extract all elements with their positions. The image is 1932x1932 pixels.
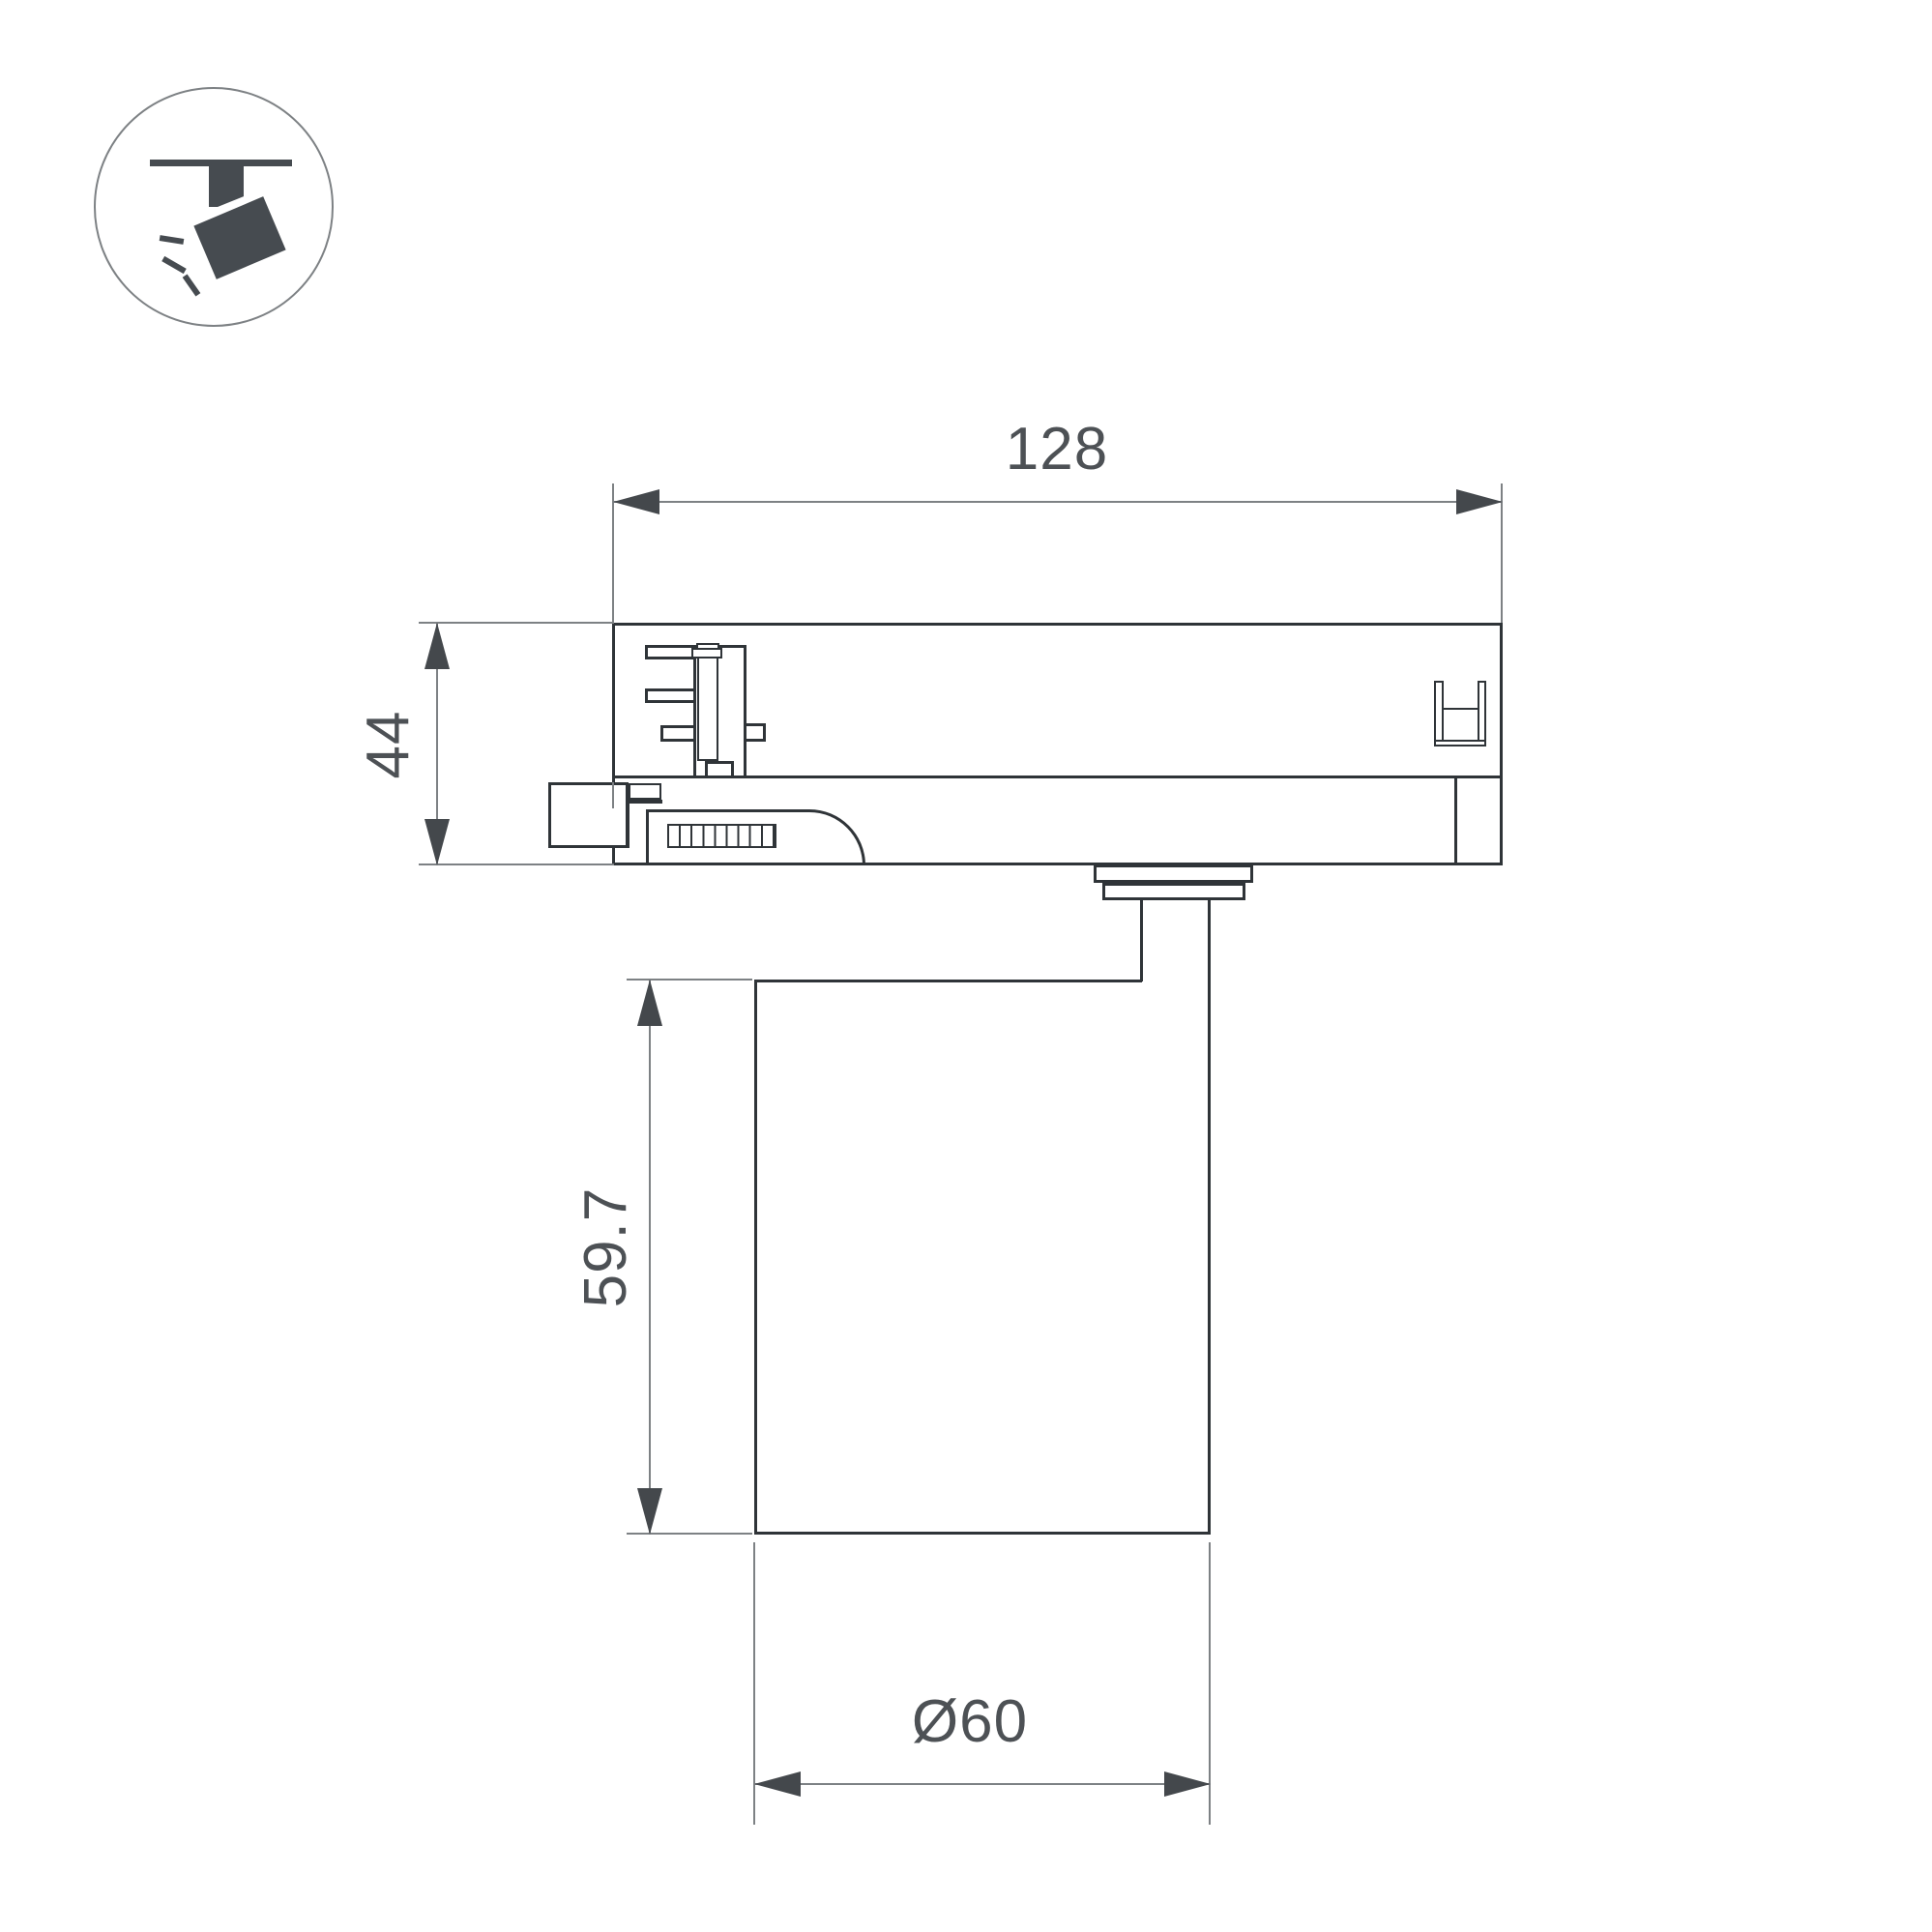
lamp-body-right-edge [1208, 980, 1211, 1535]
hidden-edge-line [612, 782, 614, 808]
dim-body-height-arrow-up [637, 980, 662, 1026]
contact-prong-middle [645, 688, 696, 703]
technical-drawing-canvas: 128 44 59.7 Ø60 [0, 0, 1932, 1932]
icon-light-ray [183, 274, 201, 296]
lamp-body-top-edge [754, 980, 1142, 982]
pivot-stem-left-line [1140, 900, 1143, 981]
mount-clip-left-wall [1434, 681, 1444, 746]
dim-adapter-height-label: 44 [359, 648, 419, 841]
contact-screw-cap-top [696, 643, 719, 650]
latch-detail [629, 783, 661, 800]
dim-width-line [613, 501, 1503, 503]
pivot-flange-upper [1094, 864, 1253, 883]
adapter-end-cap-line [1454, 778, 1457, 863]
track-spotlight-icon [94, 87, 334, 327]
dim-diameter-arrow-left [754, 1771, 801, 1797]
dim-diameter-label: Ø60 [873, 1692, 1067, 1752]
latch-bar [627, 800, 662, 804]
pivot-stem-right-line [1208, 900, 1211, 981]
dim-width-arrow-left [613, 489, 659, 514]
dim-width-label: 128 [960, 420, 1154, 480]
dim-body-height-label: 59.7 [576, 1151, 636, 1344]
dim-width-arrow-right [1456, 489, 1503, 514]
dim-body-height-line [649, 980, 651, 1535]
dim-diameter-arrow-right [1164, 1771, 1211, 1797]
release-lever-tab [548, 782, 629, 848]
mount-clip-bottom-bar [1434, 740, 1486, 746]
lamp-body-bottom-edge [754, 1532, 1211, 1535]
contact-screw-post [697, 654, 718, 761]
contact-prong-top [645, 645, 696, 659]
contact-foot [705, 761, 734, 778]
dim-adapter-height-arrow-up [424, 623, 450, 669]
dim-adapter-height-arrow-down [424, 819, 450, 865]
lamp-body-left-edge [754, 980, 757, 1535]
mount-clip-mid-line [1443, 708, 1478, 710]
dim-body-height-arrow-down [637, 1488, 662, 1535]
mount-clip-right-wall [1478, 681, 1486, 746]
icon-track-bar [150, 160, 292, 166]
contact-prong-bottom [660, 725, 696, 742]
icon-connector-stem [209, 166, 244, 207]
dim-diameter-line [754, 1783, 1211, 1785]
icon-light-ray [161, 256, 187, 274]
contact-nub [744, 723, 766, 742]
icon-lamp-head [193, 196, 285, 279]
ribbed-terminal-block [667, 824, 776, 848]
latch-step-horizontal [612, 845, 629, 848]
latch-step-vertical [627, 804, 629, 848]
pivot-flange-lower [1102, 883, 1245, 900]
icon-light-ray [160, 235, 185, 245]
